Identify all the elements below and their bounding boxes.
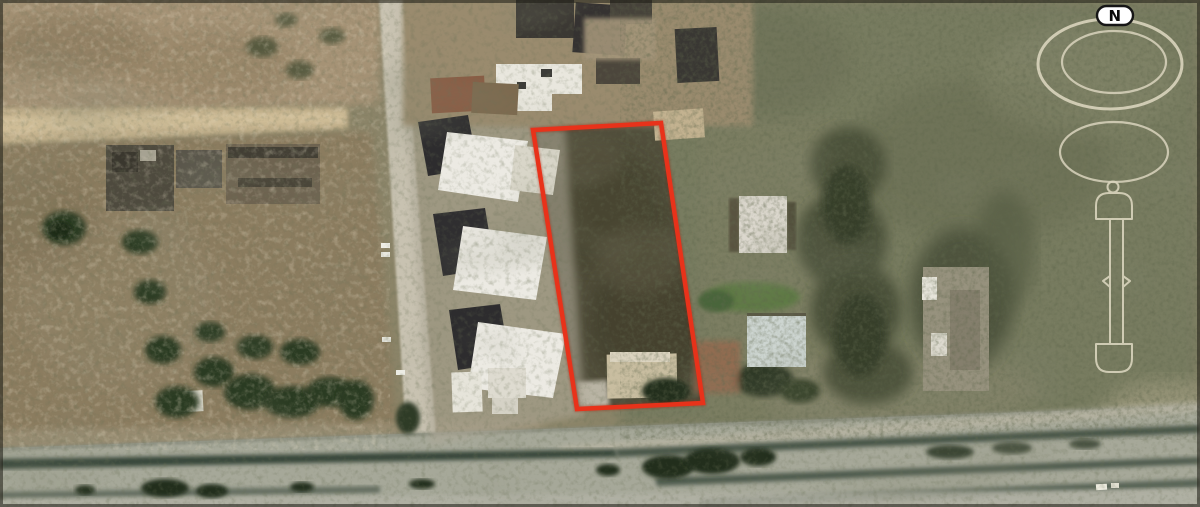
north-badge: N bbox=[1097, 6, 1133, 25]
satellite-photo-canvas: N bbox=[0, 0, 1200, 507]
photo-grain bbox=[0, 0, 1200, 507]
north-label: N bbox=[1108, 7, 1121, 25]
satellite-photo: N bbox=[0, 0, 1200, 507]
